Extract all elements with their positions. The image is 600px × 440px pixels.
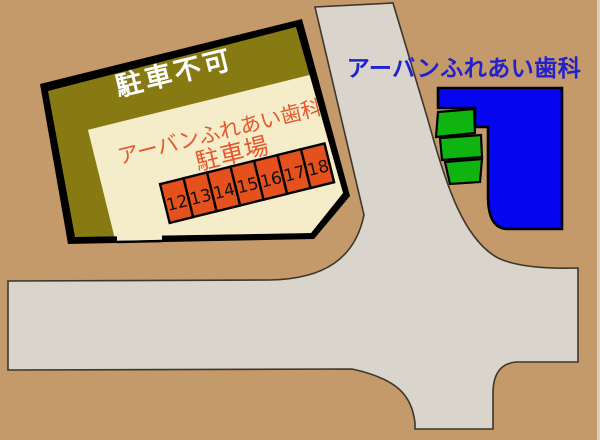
- green-space-box: [440, 135, 482, 160]
- green-space-box: [445, 159, 482, 184]
- clinic-label: アーバンふれあい歯科: [347, 56, 582, 82]
- green-space-box: [436, 109, 475, 137]
- site-map: 駐車不可 アーバンふれあい歯科 駐車場 12 13 14 15 16 17 18: [0, 0, 600, 440]
- lot-entrance-line: [117, 241, 162, 242]
